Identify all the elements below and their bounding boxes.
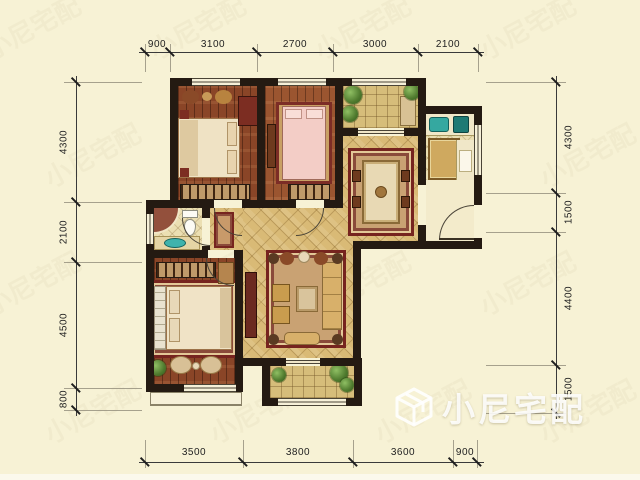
dimension-line-top <box>139 52 484 53</box>
bedroom1-nightstand <box>180 110 189 119</box>
wall-dining-south <box>353 241 482 249</box>
master-window <box>184 384 236 392</box>
rug-corner-medallion <box>268 253 279 264</box>
rug-corner-medallion <box>332 253 343 264</box>
wall-living-east <box>353 249 361 366</box>
dining-table-medallion <box>375 186 387 198</box>
balcony-door-track <box>286 360 320 364</box>
bathroom-toilet-tank <box>182 210 198 218</box>
bedroom1-window <box>192 78 240 86</box>
background-watermark-mark: 小尼宅配 <box>472 242 581 324</box>
rug-corner-medallion <box>332 334 343 345</box>
dim-bottom-2: 3800 <box>286 447 310 458</box>
bedroom2-dresser <box>267 124 276 168</box>
bedroom1-pillow <box>227 150 237 174</box>
dim-bottom-1: 3500 <box>182 447 206 458</box>
wall-balcony-west <box>262 366 270 398</box>
dim-top-1: 900 <box>148 39 166 50</box>
porch-door-track <box>358 130 404 134</box>
kitchen-stove <box>453 116 469 133</box>
dim-top-2: 3100 <box>201 39 225 50</box>
master-pillow <box>169 290 180 314</box>
brand-watermark-text: 小尼宅配 <box>442 383 586 431</box>
balcony-rail-cap-left <box>262 398 278 406</box>
dining-chair <box>401 170 410 182</box>
master-headboard <box>154 286 166 350</box>
dim-bottom-3: 3600 <box>391 447 415 458</box>
kitchen-window <box>474 125 482 175</box>
wall-kitchen-west-upper <box>418 136 426 185</box>
dim-top-4: 3000 <box>363 39 387 50</box>
brand-watermark: 小尼宅配 <box>392 383 586 431</box>
background-watermark-mark: 小尼宅配 <box>37 114 146 196</box>
bedroom2-pillow <box>285 109 302 119</box>
master-pillow <box>169 318 180 342</box>
bedroom1-cushion <box>202 92 212 101</box>
porch-plant <box>342 106 358 122</box>
wall-kitchen-west-lower <box>418 225 426 241</box>
background-watermark-mark: 小尼宅配 <box>0 242 87 324</box>
bedroom1-cushion <box>182 90 199 104</box>
kitchen-counter-sheet <box>459 150 472 172</box>
wall-bedroom2-east <box>335 86 343 208</box>
bedroom1-pillow <box>227 122 237 146</box>
background-watermark-mark: 小尼宅配 <box>0 0 87 67</box>
cube-logo-icon <box>392 385 436 429</box>
dim-left-1: 4300 <box>59 130 70 154</box>
balcony-plant <box>340 378 354 392</box>
master-bay-window <box>150 392 242 406</box>
dim-top-3: 2700 <box>283 39 307 50</box>
dining-chair <box>352 196 361 208</box>
master-ball-cushion <box>192 362 200 370</box>
tv-console <box>245 272 257 338</box>
master-pouf <box>200 356 222 374</box>
bathroom-sink <box>164 238 186 248</box>
porch-shoe-cabinet <box>400 96 416 126</box>
dim-bottom-4: 900 <box>456 447 474 458</box>
background-watermark-mark: 小尼宅配 <box>472 0 581 67</box>
dim-left-4: 800 <box>59 390 70 408</box>
coffee-table <box>296 286 318 312</box>
wall-bedroom-divider1 <box>257 86 265 208</box>
armchair <box>272 284 290 302</box>
master-foot-throw <box>220 288 231 348</box>
wall-living-south-a <box>243 358 286 366</box>
entry-door-leaf <box>439 238 474 240</box>
pouf <box>280 252 294 265</box>
bedroom2-wardrobe <box>288 184 330 200</box>
background-watermark-mark: 小尼宅配 <box>142 0 251 67</box>
balcony-plant <box>272 368 286 382</box>
wall-master-south-b <box>236 384 243 392</box>
sofa-right <box>322 262 342 330</box>
wall-master-north-b <box>234 250 243 258</box>
dim-top-5: 2100 <box>436 39 460 50</box>
balcony-rail-cap-right <box>346 398 362 406</box>
dim-right-1: 4300 <box>564 125 575 149</box>
dim-left-3: 4500 <box>59 313 70 337</box>
dining-chair <box>401 196 410 208</box>
pouf <box>314 252 328 265</box>
background-watermark-mark: 小尼宅配 <box>532 114 640 196</box>
wall-kitchen-top <box>426 106 482 114</box>
dining-chair <box>352 170 361 182</box>
bedroom1-corner-cabinet <box>238 96 258 126</box>
dimension-line-left <box>76 76 77 416</box>
wall-master-south-a <box>146 384 184 392</box>
sofa-bench <box>284 332 320 345</box>
bedroom1-cushion <box>215 90 232 104</box>
bedroom1-nightstand <box>180 168 189 177</box>
wall-hall-north-a <box>146 200 214 208</box>
wall-hall-north-c <box>324 200 343 208</box>
balcony-rail-window <box>278 398 346 406</box>
wall-porch-bottom-left <box>343 128 358 136</box>
dim-left-2: 2100 <box>59 220 70 244</box>
porch-plant <box>344 86 362 104</box>
wall-bathroom-east-a <box>202 208 210 218</box>
bedroom2-pillow <box>306 109 323 119</box>
porch-window <box>352 78 406 86</box>
master-pouf <box>170 356 192 374</box>
wall-master-north-a <box>146 250 208 258</box>
bedroom2-window <box>278 78 326 86</box>
floor-plan-canvas: 小尼宅配小尼宅配小尼宅配小尼宅配小尼宅配小尼宅配小尼宅配小尼宅配小尼宅配小尼宅配… <box>0 0 640 480</box>
background-watermark-mark: 小尼宅配 <box>307 0 416 67</box>
armchair <box>272 306 290 324</box>
wall-porch-bottom-right <box>404 128 426 136</box>
dim-right-3: 4400 <box>564 286 575 310</box>
wall-hall-north-b <box>242 200 296 208</box>
bottom-edge-strip <box>0 474 640 480</box>
dimension-line-bottom <box>139 462 484 463</box>
wall-living-south-b <box>320 358 362 366</box>
wall-balcony-east <box>354 366 362 398</box>
dim-right-2: 1500 <box>564 200 575 224</box>
bedroom1-wardrobe <box>180 184 250 200</box>
wall-bedroom1-west <box>170 86 178 208</box>
wall-master-east <box>235 258 243 392</box>
pouf <box>298 251 310 263</box>
bathroom-window <box>146 214 154 244</box>
kitchen-sink <box>429 117 449 132</box>
rug-corner-medallion <box>268 334 279 345</box>
